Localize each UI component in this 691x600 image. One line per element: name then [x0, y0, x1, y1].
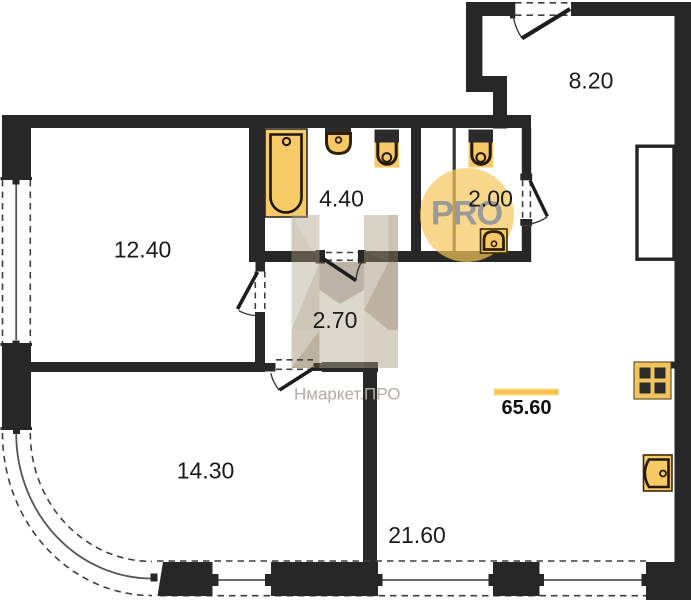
svg-text:Нмаркет.ПРО: Нмаркет.ПРО — [294, 385, 400, 404]
svg-text:4.40: 4.40 — [319, 186, 364, 212]
svg-text:21.60: 21.60 — [388, 522, 446, 548]
svg-text:12.40: 12.40 — [114, 237, 172, 263]
svg-text:2.70: 2.70 — [313, 307, 358, 333]
svg-text:14.30: 14.30 — [177, 458, 235, 484]
svg-text:2.00: 2.00 — [468, 186, 513, 212]
svg-text:65.60: 65.60 — [501, 397, 551, 419]
svg-text:8.20: 8.20 — [569, 68, 614, 94]
